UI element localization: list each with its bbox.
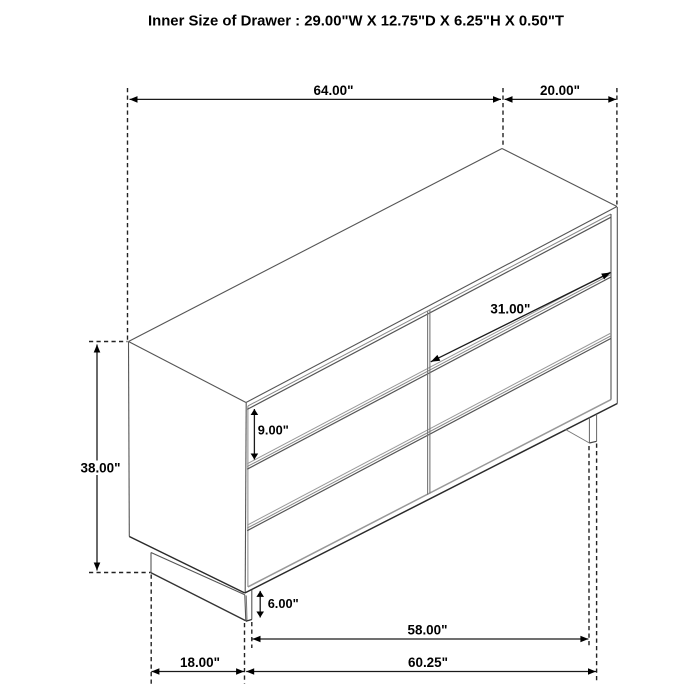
- svg-text:18.00": 18.00": [180, 655, 220, 670]
- svg-text:38.00": 38.00": [81, 460, 121, 475]
- svg-text:Inner Size of Drawer : 29.00"W: Inner Size of Drawer : 29.00"W X 12.75"D…: [148, 14, 564, 30]
- svg-text:6.00": 6.00": [268, 596, 299, 611]
- svg-text:60.25": 60.25": [408, 655, 448, 670]
- svg-text:31.00": 31.00": [490, 302, 530, 317]
- svg-text:58.00": 58.00": [408, 623, 448, 638]
- svg-text:9.00": 9.00": [258, 423, 289, 438]
- svg-text:20.00": 20.00": [540, 83, 580, 98]
- svg-text:64.00": 64.00": [314, 83, 354, 98]
